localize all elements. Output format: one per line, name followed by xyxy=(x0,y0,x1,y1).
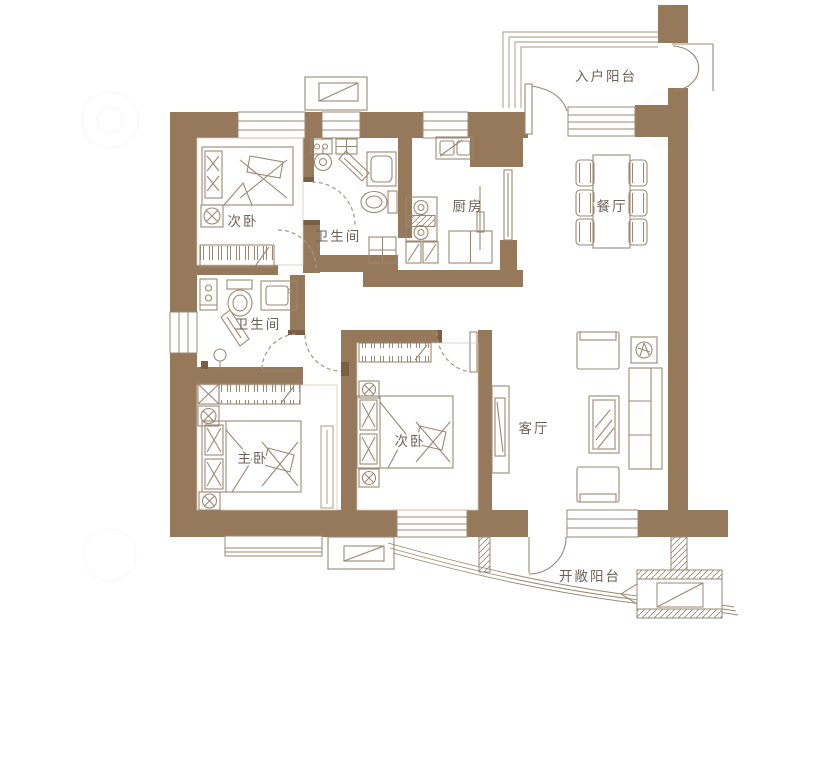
room-label-bedroom-top: 次卧 xyxy=(228,214,259,229)
bed xyxy=(357,396,453,468)
room-label-bathroom-middle: 卫生间 xyxy=(235,317,282,332)
wall xyxy=(170,510,327,537)
window xyxy=(238,112,305,138)
wall-pillar xyxy=(658,5,688,43)
room-labels: 次卧 卫生间 厨房 入户阳台 餐厅 卫生间 主卧 次卧 客厅 开敞阳台 xyxy=(228,68,638,584)
window xyxy=(397,510,467,537)
room-label-bathroom-top: 卫生间 xyxy=(315,229,362,244)
chair xyxy=(629,160,647,186)
shower-door xyxy=(339,151,369,181)
coffee-table xyxy=(589,396,619,453)
wall xyxy=(341,330,437,343)
window xyxy=(170,312,197,353)
cabinet-x xyxy=(198,384,219,404)
cabinet xyxy=(423,242,438,263)
chair xyxy=(576,190,594,216)
room-label-bedroom-middle: 次卧 xyxy=(395,434,426,449)
ac-unit-icon xyxy=(359,469,379,487)
bay-window xyxy=(225,536,322,556)
wardrobe xyxy=(359,343,431,362)
ac-unit-icon xyxy=(199,492,220,510)
wall xyxy=(305,112,322,138)
door-leaf xyxy=(470,332,477,372)
door-arc-bathroom-top xyxy=(312,182,355,225)
toilet-icon xyxy=(361,191,397,213)
flower-bed xyxy=(621,570,722,618)
hatched-pier xyxy=(671,537,687,573)
armchair xyxy=(577,332,619,369)
bedroom-middle-furniture xyxy=(357,343,478,510)
window xyxy=(568,107,635,136)
wall xyxy=(341,330,357,510)
entry-door xyxy=(672,44,713,91)
room-label-living: 客厅 xyxy=(519,420,550,436)
wall xyxy=(467,510,528,537)
room-label-open-balcony: 开敞阳台 xyxy=(559,569,621,584)
chair xyxy=(576,160,594,186)
ac-platform-top xyxy=(305,77,367,110)
room-label-master-bedroom: 主卧 xyxy=(238,451,269,466)
shower-stall xyxy=(367,152,396,186)
room-label-kitchen: 厨房 xyxy=(453,199,484,214)
door-arc-master-bedroom xyxy=(305,335,341,371)
floor-plan: 次卧 卫生间 厨房 入户阳台 餐厅 卫生间 主卧 次卧 客厅 开敞阳台 xyxy=(0,0,814,758)
balcony-entrance-door xyxy=(525,84,567,134)
wall xyxy=(363,270,523,287)
bedroom-top-left-furniture xyxy=(197,138,303,267)
floor-drain xyxy=(201,349,226,369)
door-arc-bathroom-middle xyxy=(262,334,297,369)
chair xyxy=(629,219,647,245)
armchair xyxy=(577,467,619,502)
wall xyxy=(478,330,492,510)
wall xyxy=(170,112,197,312)
sliding-door xyxy=(504,170,512,240)
tv-console xyxy=(492,386,509,473)
wall xyxy=(303,138,314,182)
chair xyxy=(629,190,647,216)
wardrobe xyxy=(200,245,274,267)
chair xyxy=(576,219,594,245)
living-furniture xyxy=(492,332,662,502)
room-label-entry-balcony: 入户阳台 xyxy=(575,68,637,84)
wall xyxy=(638,510,728,537)
sofa xyxy=(629,368,662,469)
ac-unit-icon xyxy=(201,205,223,227)
window xyxy=(567,510,638,537)
wall xyxy=(635,105,668,137)
bed xyxy=(202,147,293,205)
ac-platform-bottom xyxy=(328,537,394,569)
tall-cabinet xyxy=(321,426,333,508)
washbasin-icon xyxy=(315,147,332,171)
wall xyxy=(170,353,197,510)
wall xyxy=(327,510,397,537)
wall xyxy=(498,130,517,167)
wardrobe xyxy=(219,384,300,404)
ac-unit-icon xyxy=(198,406,219,426)
cabinet xyxy=(311,139,332,154)
room-label-dining: 餐厅 xyxy=(597,199,628,214)
counter-edge xyxy=(477,186,484,250)
wall xyxy=(197,367,303,385)
refrigerator xyxy=(449,231,492,263)
cabinet xyxy=(406,242,421,263)
window xyxy=(322,112,360,138)
floor-plan-drawing: 次卧 卫生间 厨房 入户阳台 餐厅 卫生间 主卧 次卧 客厅 开敞阳台 xyxy=(0,0,814,758)
kitchen-sink xyxy=(436,137,473,159)
wall xyxy=(668,88,688,537)
side-table-plant xyxy=(631,337,657,363)
master-bedroom-furniture xyxy=(197,384,337,510)
hatched-pier xyxy=(479,537,490,572)
cabinet xyxy=(200,279,217,310)
wall xyxy=(360,112,423,138)
bathroom-top-fixtures xyxy=(311,139,397,263)
window xyxy=(423,112,468,138)
